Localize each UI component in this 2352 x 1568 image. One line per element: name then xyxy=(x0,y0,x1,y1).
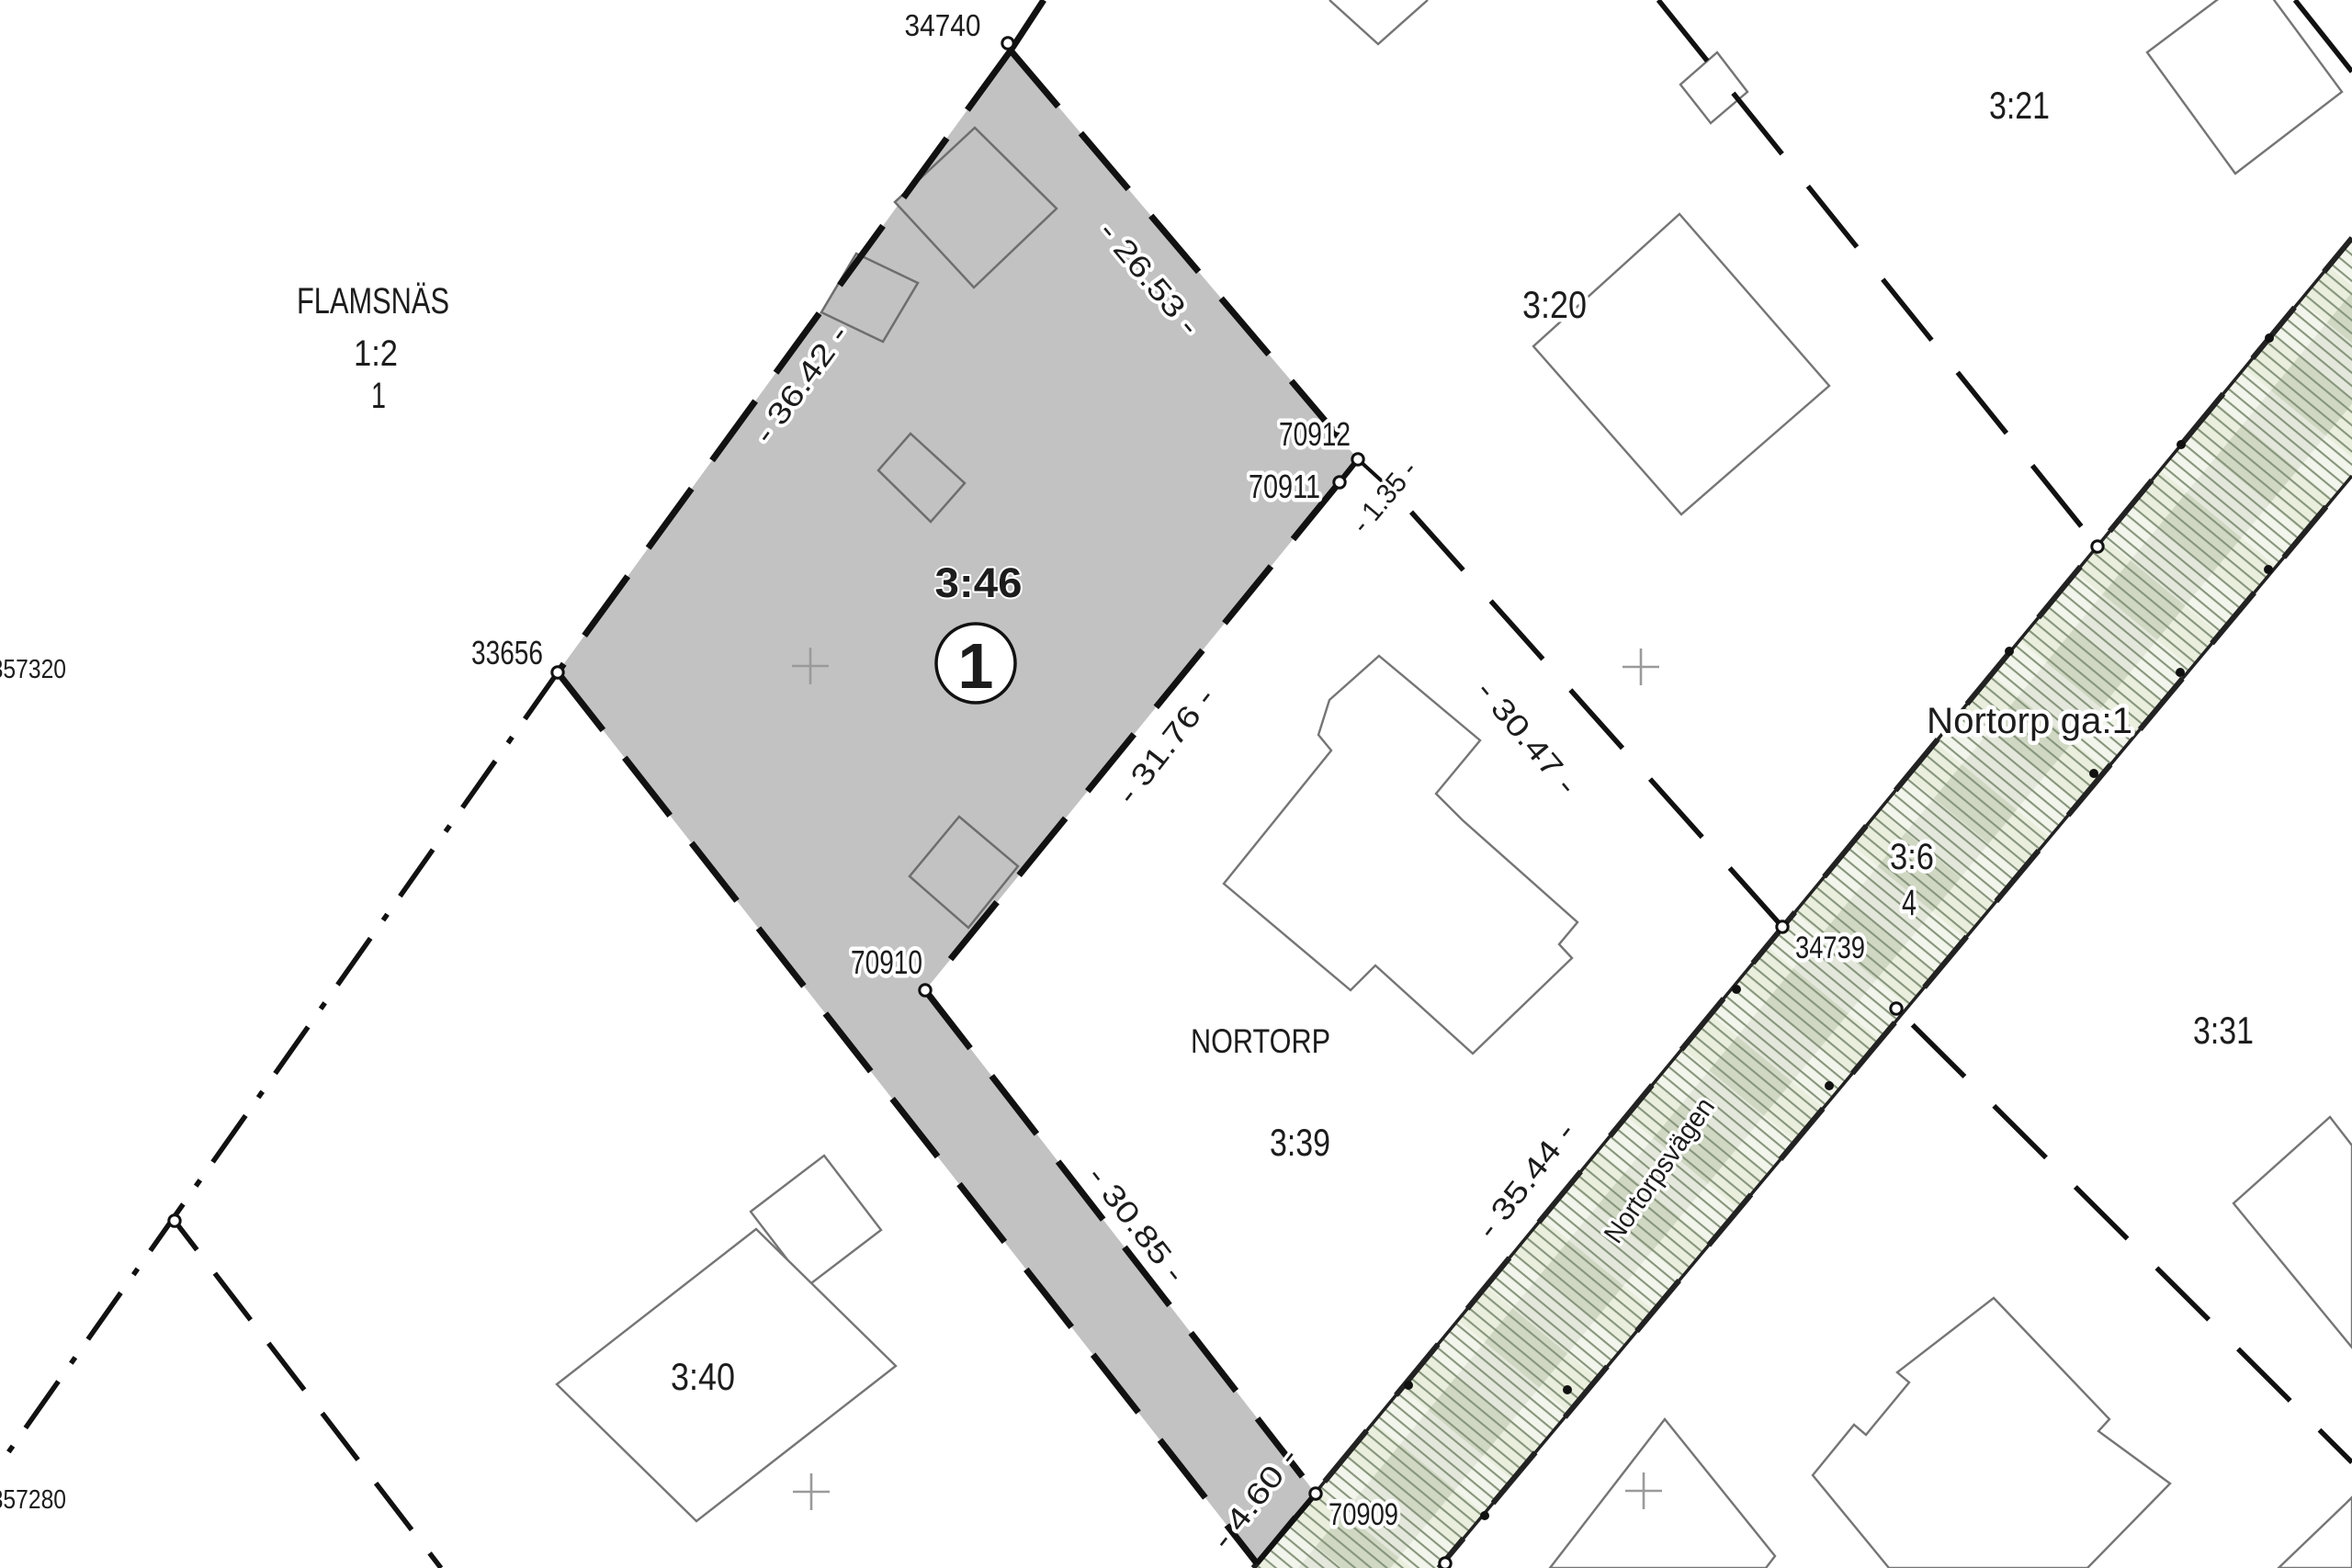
svg-text:Nortorp ga:1: Nortorp ga:1 xyxy=(1927,701,2132,741)
svg-text:1: 1 xyxy=(958,630,994,702)
svg-text:3:6: 3:6 xyxy=(1890,837,1934,877)
svg-text:FLAMSNÄS: FLAMSNÄS xyxy=(297,281,449,321)
svg-text:70910: 70910 xyxy=(851,943,922,981)
svg-text:6357280: 6357280 xyxy=(0,1485,66,1515)
svg-text:3:31: 3:31 xyxy=(2193,1009,2254,1052)
svg-text:3:40: 3:40 xyxy=(671,1355,735,1398)
svg-text:34739: 34739 xyxy=(1795,931,1865,965)
svg-text:4: 4 xyxy=(1902,883,1917,923)
svg-text:6357320: 6357320 xyxy=(0,655,66,684)
svg-text:NORTORP: NORTORP xyxy=(1191,1022,1330,1060)
svg-text:3:21: 3:21 xyxy=(1989,84,2050,127)
svg-text:1: 1 xyxy=(371,376,386,416)
svg-text:3:39: 3:39 xyxy=(1270,1121,1330,1164)
svg-text:1:2: 1:2 xyxy=(354,333,398,374)
svg-text:70909: 70909 xyxy=(1329,1497,1398,1532)
svg-text:33656: 33656 xyxy=(471,634,543,671)
svg-text:70911: 70911 xyxy=(1249,468,1320,505)
svg-text:34740: 34740 xyxy=(905,8,981,42)
svg-text:70912: 70912 xyxy=(1279,415,1351,453)
svg-text:3:46: 3:46 xyxy=(935,559,1023,606)
svg-text:3:20: 3:20 xyxy=(1522,283,1587,326)
